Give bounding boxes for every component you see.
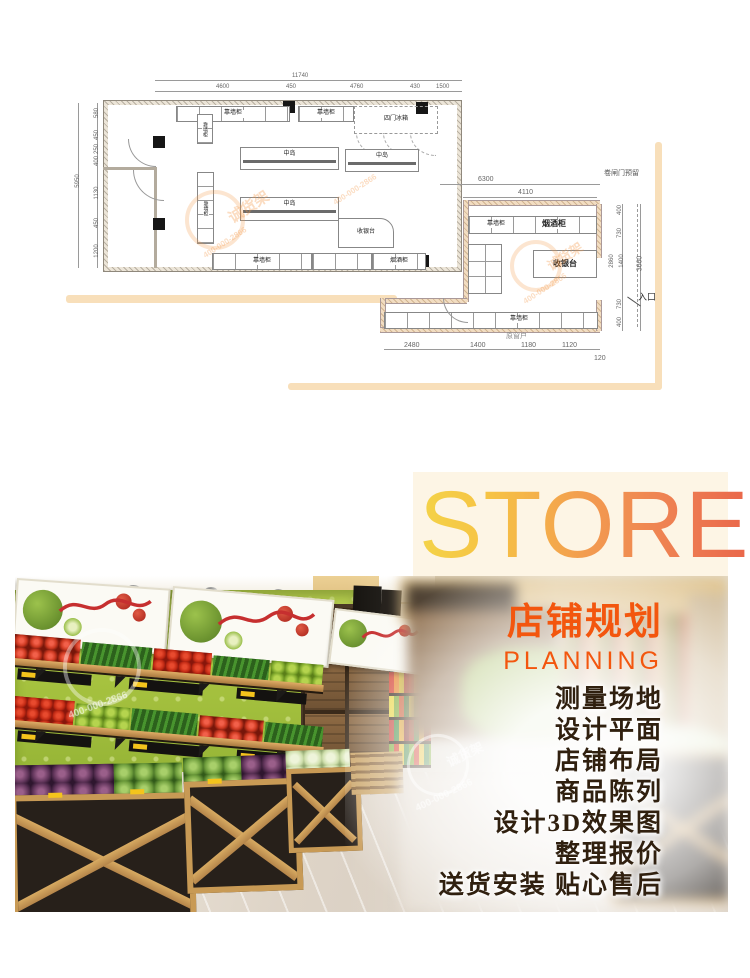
poster-page: 11740 4600 450 4760 430 1500 5950 580 45… <box>0 0 750 978</box>
dim-seg: 4110 <box>518 189 533 196</box>
dim-seg: 6300 <box>478 176 494 183</box>
purple-cabbage-produce <box>15 764 114 798</box>
service-item: 整理报价 <box>243 839 663 870</box>
shelf-bracket <box>198 683 209 696</box>
promo-text-block: 店铺规划 PLANNING 测量场地 设计平面 店铺布局 商品陈列 设计3D效果… <box>243 604 663 901</box>
hero-title: STORE <box>419 478 750 573</box>
price-chip <box>21 672 35 678</box>
dim-seg: 730 <box>605 230 635 236</box>
wall <box>463 200 600 206</box>
dim-seg: 2480 <box>404 342 420 349</box>
dim-line <box>463 197 597 198</box>
cabinet-run <box>384 312 598 329</box>
service-item: 商品陈列 <box>243 777 663 808</box>
service-item: 设计3D效果图 <box>243 808 663 839</box>
dim-line <box>384 349 600 350</box>
shelf-bracket <box>115 738 126 751</box>
hero-panel: STORE <box>413 472 728 576</box>
dim-seg: 400 <box>605 207 635 213</box>
red-script-graphic <box>54 589 156 630</box>
display-table <box>15 763 184 912</box>
service-item: 送货安装 贴心售后 <box>243 870 663 901</box>
store-photo: 400-000-2866 400-000-2866 诚货架 店铺规划 PLANN… <box>15 576 728 912</box>
price-chip <box>21 734 35 740</box>
service-item: 设计平面 <box>243 715 663 746</box>
promo-subtitle: PLANNING <box>243 649 663 674</box>
price-chip <box>48 793 62 798</box>
service-item: 店铺布局 <box>243 746 663 777</box>
fixture-label: 烟酒柜 <box>540 219 568 229</box>
price-chip <box>130 789 144 794</box>
dim-seg: 1400 <box>470 342 486 349</box>
floor-plan-2: 6300 4110 卷闸门预留 靠墙柜 烟酒柜 收银台 靠墙柜 原窗户 2480… <box>0 0 750 400</box>
dim-seg: 1120 <box>562 342 577 349</box>
dim-seg: 400 <box>605 319 635 325</box>
green-cabbage-produce <box>114 763 183 794</box>
shelf-bracket <box>35 731 46 744</box>
dim-seg: 1180 <box>521 342 536 349</box>
price-chip <box>133 743 147 749</box>
dim-total: 3660 <box>625 260 655 267</box>
dim-seg: 120 <box>594 355 606 362</box>
storage-boxes <box>468 244 502 294</box>
promo-title: 店铺规划 <box>243 604 663 641</box>
window-label: 原窗户 <box>506 333 527 340</box>
service-item: 测量场地 <box>243 684 663 715</box>
shelf-bracket <box>35 669 46 682</box>
dim-line <box>440 184 600 185</box>
fixture-label: 靠墙柜 <box>485 221 507 228</box>
shutter-label: 卷闸门预留 <box>604 170 639 177</box>
price-chip <box>208 779 222 784</box>
entrance-label: 入口 <box>638 290 656 303</box>
table-x-front <box>15 792 196 912</box>
fixture-label: 靠墙柜 <box>508 316 530 323</box>
